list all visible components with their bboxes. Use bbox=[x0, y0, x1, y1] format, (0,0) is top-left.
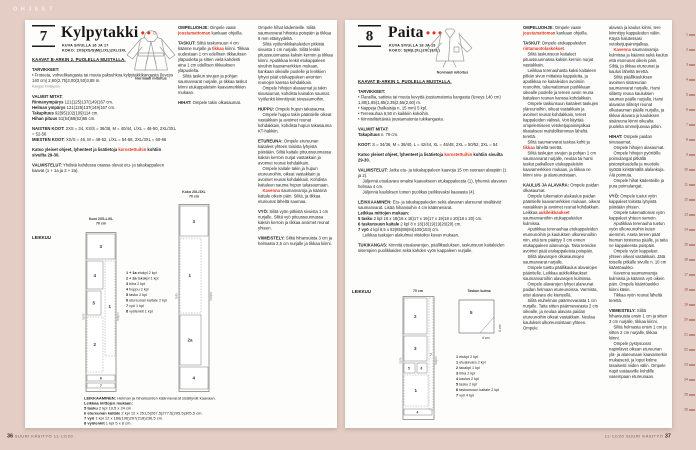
paragraph: Silitä vyölenkkikaitaleiden pitkistä siv… bbox=[258, 42, 333, 86]
pattern-sheet-note: KAAVAT B-ARKIN 2. PUOLELLA MUSTALLA. bbox=[32, 57, 126, 62]
paragraph: Silitä etuhelman päärmevarasta 1 cm nurj… bbox=[523, 298, 600, 331]
ruler-mark: 5 bbox=[678, 88, 695, 103]
cutting-diagram-1: 3 4 1 5 2 6 7 taite hulpio bbox=[82, 232, 120, 393]
cutting-measurements: LEIKKAAMINEN: Helman ja hihansuiden kään… bbox=[84, 396, 319, 426]
pattern-number: 8 bbox=[358, 25, 381, 47]
paragraph: Leikkaa taskujen alakulmat viistoiksi ku… bbox=[358, 233, 508, 239]
paragraph: TASKUT: Ompele etukappaleiden rintamuoto… bbox=[523, 41, 600, 52]
paragraph: VIIMEISTELY: Silitä hihansuista ensin 1 … bbox=[609, 308, 668, 325]
ruler-mark: 15 bbox=[678, 238, 695, 253]
ruler-mark: 10 bbox=[678, 163, 695, 178]
pattern-number-value: 8 bbox=[366, 28, 374, 45]
piece-number: 2a bbox=[188, 338, 194, 343]
pattern-title-text: Paita bbox=[388, 23, 424, 41]
paragraph: • Flanellia, satiinia tai muuta kevyttä … bbox=[358, 95, 508, 106]
paragraph: Ompele tukematon alakaulus paidan päänti… bbox=[523, 194, 600, 227]
column-instructions-2: alavara ja kaulus kiinni, tere kiinnitty… bbox=[609, 25, 668, 425]
ruler-mark: 2 bbox=[678, 43, 695, 58]
ruler-mark: 23 bbox=[678, 358, 695, 373]
paragraph: Ompele kaitale takin ja hupun etureunoih… bbox=[258, 166, 333, 188]
paragraph: MIESTEN KOOT: XS/S = 46, M = 48-52, L/XL… bbox=[32, 137, 176, 143]
piece-number: 6 bbox=[100, 377, 102, 381]
paragraph: KOOT: S = 34/36, M = 38/40, L = 42/44, X… bbox=[358, 142, 508, 148]
paragraph: Ompele hihat kädenteille ja pura poimula… bbox=[609, 178, 668, 189]
paragraph: Katso yleiset ohjeet, lyhenteet ja lisät… bbox=[358, 152, 508, 163]
corner-dimension: 4 cm bbox=[498, 324, 502, 332]
pocket-corner-label: Taskun kulma bbox=[453, 289, 505, 294]
column-materials: TARVIKKEET:• Froteeta, vohvelikangasta t… bbox=[32, 67, 176, 233]
paragraph: Ompele taskunsuun kaitaleet taskujen ylä… bbox=[523, 101, 600, 140]
paragraph: Kavenna saumanvaroja kulmissa ja käännä … bbox=[609, 271, 668, 293]
pattern-sheet-note: KAAVAT B-ARKIN 1. PUOLELLA MUSTALLA. bbox=[358, 79, 452, 84]
paragraph: Ompele huppu takin pääntielle oikeat vas… bbox=[258, 112, 333, 134]
paragraph: TUKIKANGAS: Kiinnitä etualavarojen, pääl… bbox=[358, 243, 508, 254]
paragraph: • Kiinnisilitettävää joustamatonta tukik… bbox=[358, 117, 508, 123]
paragraph: Silitä taskun sivujen ja pohjan saumanva… bbox=[178, 74, 249, 96]
page-left: 7 Kylpytakki●●○ KUVA SIVULLA 16 JA 17KOK… bbox=[25, 20, 337, 428]
piece-number: 6 bbox=[421, 367, 423, 371]
ruler-mark: 14 bbox=[678, 223, 695, 238]
paragraph: 7 vyö 4 kpl bbox=[456, 393, 546, 399]
ruler-mark: 16 bbox=[678, 253, 695, 268]
ruler-mark: 4 bbox=[678, 73, 695, 88]
paragraph: VIIMEISTELY: Silitä hihansuista 3 cm ja … bbox=[258, 236, 333, 247]
piece-number: 5 bbox=[408, 367, 410, 371]
footer-left: 36 SUURI KÄSITYÖ 11-12/20 bbox=[7, 433, 73, 439]
paragraph: Jäljennä etualavara omaksi kaavakseen et… bbox=[358, 179, 508, 190]
ruler-mark: 1 bbox=[678, 28, 695, 43]
paragraph: Tikkaa vyön reunat läheltä terettä. bbox=[609, 293, 668, 304]
ruler-mark: 17 bbox=[678, 268, 695, 283]
paragraph: alavara ja kaulus kiinni, tere kiinnitty… bbox=[609, 25, 668, 47]
piece-number: 7 bbox=[430, 353, 432, 357]
paragraph: Katso yleiset ohjeet, lyhenteet ja lisät… bbox=[32, 147, 176, 158]
ruler-mark: 6 bbox=[678, 103, 695, 118]
column-materials: TARVIKKEET:• Flanellia, satiinia tai muu… bbox=[358, 89, 508, 284]
paragraph: Silitä taskujen sivujen ja pohjan 1 cm s… bbox=[523, 151, 600, 179]
paragraph: Ompele hihat kädenteille. Silitä saumanv… bbox=[258, 25, 333, 42]
paragraph: Silitä saumanvarat taskua kohti ja tikka… bbox=[523, 140, 600, 151]
paragraph: Silitä päällikauluksen avoimen sisäreuna… bbox=[609, 75, 668, 130]
paragraph: VYÖ: Ompele tuetut vyön kappaleet toisis… bbox=[609, 194, 668, 211]
ruler-mark: 7 bbox=[678, 118, 695, 133]
paragraph: Ompele hihojen pyöriöille poimulangat pi… bbox=[609, 151, 668, 179]
paragraph: KOKO: 2XS(XS/S)M(L/XL)2XL/3XL bbox=[62, 48, 127, 53]
fold-label: taite bbox=[82, 313, 86, 319]
paragraph: Kavenna saumanvaroja kulmissa ja käännä … bbox=[609, 47, 668, 75]
paragraph: Aputikkaa terenauha tuetun vyön ulkoreun… bbox=[609, 221, 668, 249]
paragraph: • Froteeta, vohvelikangasta tai muuta pa… bbox=[32, 73, 176, 84]
paragraph: Silitä taskunsuun kaitaleet pituussuunna… bbox=[523, 52, 600, 69]
shirt-illustration bbox=[424, 23, 476, 69]
ruler-mark: 11 bbox=[678, 178, 695, 193]
magazine-issue: 11-12/20 SUURI KÄSITYÖ bbox=[605, 434, 664, 439]
paragraph: VYÖ: Silitä vyön pitkistä sivuista 1 cm … bbox=[258, 209, 333, 231]
cutting-strip1-label: Koot 2XS-L/XL 70 cm bbox=[78, 217, 124, 226]
selvage-label: hulpio bbox=[434, 356, 438, 365]
ruler-mark: 25 bbox=[678, 388, 695, 403]
cutting-strip-width: 70 cm bbox=[395, 289, 441, 294]
footer-right: 11-12/20 SUURI KÄSITYÖ 37 bbox=[605, 433, 671, 439]
column-instructions-1: OMPELUOHJE: Ompele vaate joustamattoman … bbox=[178, 25, 249, 190]
cutting-diagram-2: 3 1 2a 4 taite hulpio bbox=[175, 204, 213, 393]
ruler-mark: 24 bbox=[678, 373, 695, 388]
fold-label: taite bbox=[175, 293, 179, 299]
page-number: 36 bbox=[7, 433, 13, 439]
paragraph: Ompele pystysuorat napinlävet oikean etu… bbox=[609, 341, 668, 380]
paragraph: 8 vyölenkit 1 kpl 5 x 8 cm. bbox=[84, 421, 319, 426]
edge-ruler: 1234567891011121314151617181920212223242… bbox=[678, 28, 695, 418]
paragraph: Kavenna saumanvaroja ja käännä kaitale o… bbox=[258, 188, 333, 205]
paragraph: Ompele alavarojen lyhyet alareunat paida… bbox=[523, 282, 600, 299]
piece-number: 7 bbox=[100, 384, 102, 388]
cutting-strip1-width: 70 cm bbox=[78, 222, 124, 227]
paragraph: OMPELUOHJE: Ompele vaate joustamattoman … bbox=[523, 25, 600, 36]
selvage-label: hulpio bbox=[116, 312, 120, 321]
selvage-label: hulpio bbox=[209, 292, 213, 301]
paragraph: NAISTEN KOOT: 2XS = 34, XS/S = 36/38, M … bbox=[32, 126, 176, 137]
pattern-header-lines: KUVA SIVULLA 16 JA 17KOKO: 2XS(XS/S)M(L/… bbox=[62, 43, 127, 53]
magazine-issue: SUURI KÄSITYÖ 11-12/20 bbox=[15, 434, 74, 439]
paragraph: Ompele tuettu päällikaulus alavarojen pä… bbox=[523, 265, 600, 282]
corner-dimension: 4 cm bbox=[482, 336, 490, 340]
paragraph: Kangas Finlayson. bbox=[32, 84, 176, 90]
page-number: 37 bbox=[665, 433, 671, 439]
ruler-mark: 3 bbox=[678, 58, 695, 73]
pocket-corner-diagram: 5 4 cm 4 cm bbox=[456, 298, 504, 343]
paragraph: Ompele vyön kappaleet yhteen oikeat vast… bbox=[609, 249, 668, 271]
ruler-mark: 21 bbox=[678, 328, 695, 343]
paragraph: Silitä alavarojen olkasaumojen saumanvar… bbox=[523, 254, 600, 265]
ruler-mark: 26 bbox=[678, 403, 695, 418]
illustration-caption: Normaali mitoitus bbox=[425, 70, 480, 75]
section-label: OHJEET bbox=[13, 6, 56, 12]
paragraph: VALMISTELUT: Yhdistä kahdessa osassa ole… bbox=[32, 163, 176, 174]
spread-scaler: OHJEET 7 Kylpytakki●●○ KUVA SIVULLA 16 J… bbox=[0, 0, 696, 450]
ruler-mark: 13 bbox=[678, 208, 695, 223]
paragraph: Silitä helmasta ensin 1 cm ja sitten 2 c… bbox=[609, 325, 668, 342]
ruler-mark: 12 bbox=[678, 193, 695, 208]
ruler-mark: 18 bbox=[678, 283, 695, 298]
paragraph: HIHAT: Ompele takin olkasaumat. bbox=[178, 100, 249, 106]
paragraph: Takapituus n. 79 cm. bbox=[358, 132, 508, 138]
paragraph: Leikkaa terenauhasta kaksi kaitaleen pit… bbox=[523, 68, 600, 101]
ruler-mark: 19 bbox=[678, 298, 695, 313]
piece-number: 4 bbox=[417, 411, 419, 415]
paragraph: Aputikkaa terenauhaa etukappaleiden etur… bbox=[523, 227, 600, 255]
cutting-diagram: 2 3 7 5 6 1 4 taite hulpio bbox=[396, 296, 448, 420]
cutting-layout-label: LEIKKUU bbox=[352, 289, 371, 294]
ruler-mark: 22 bbox=[678, 343, 695, 358]
pattern-number: 7 bbox=[32, 25, 55, 47]
page-right: 8 Paita●●● KUVA SIVULLA 18 JA 19KOKO: S(… bbox=[345, 20, 672, 428]
paragraph: ETUREUNA: Ompele etureunan kaitaleet yht… bbox=[258, 139, 333, 167]
paragraph: Hihan pituus 51(54)58(62)65 cm. bbox=[32, 116, 176, 122]
paragraph: OMPELUOHJE: Ompele vaate joustamattoman … bbox=[178, 25, 249, 36]
paragraph: TASKUT: Silitä taskunsuun 4 cm käänne nu… bbox=[178, 41, 249, 74]
pattern-number-value: 7 bbox=[40, 28, 48, 45]
magazine-spread: OHJEET 7 Kylpytakki●●○ KUVA SIVULLA 16 J… bbox=[0, 0, 696, 450]
pieces-legend: 1 etukpl 2 kpl1 etualavara 2 kpl2 takakp… bbox=[456, 354, 546, 398]
paragraph: Ompele hihojen alasaumat ja takin sivusa… bbox=[258, 86, 333, 103]
ruler-mark: 8 bbox=[678, 133, 695, 148]
paragraph: Jäljennä kauluksen toinen puolikas peili… bbox=[358, 190, 508, 196]
paragraph: HIHAT: Ompele paidan sivusaumat. bbox=[609, 134, 668, 145]
paragraph: KAULUS JA ALAVARA: Ompele paidan olkasau… bbox=[523, 183, 600, 194]
paragraph: VALMISTELUT: Jatka etu- ja takakappaleen… bbox=[358, 168, 508, 179]
fold-label: taite bbox=[399, 357, 403, 363]
paragraph: Ompele tukemattomat vyön kappaleet yhtee… bbox=[609, 210, 668, 221]
ruler-mark: 20 bbox=[678, 313, 695, 328]
cutting-layout-label: LEIKKUU bbox=[32, 235, 51, 240]
cutting-strip2-width: 70 cm bbox=[171, 195, 217, 200]
column-instructions-2: Ompele hihat kädenteille. Silitä saumanv… bbox=[258, 25, 333, 425]
paragraph: LEIKKAAMINEN: Etu- ja takakappaleiden se… bbox=[358, 200, 508, 211]
cutting-strip2-label: Koko 2XL/3XL 70 cm bbox=[171, 190, 217, 199]
ruler-mark: 9 bbox=[678, 148, 695, 163]
